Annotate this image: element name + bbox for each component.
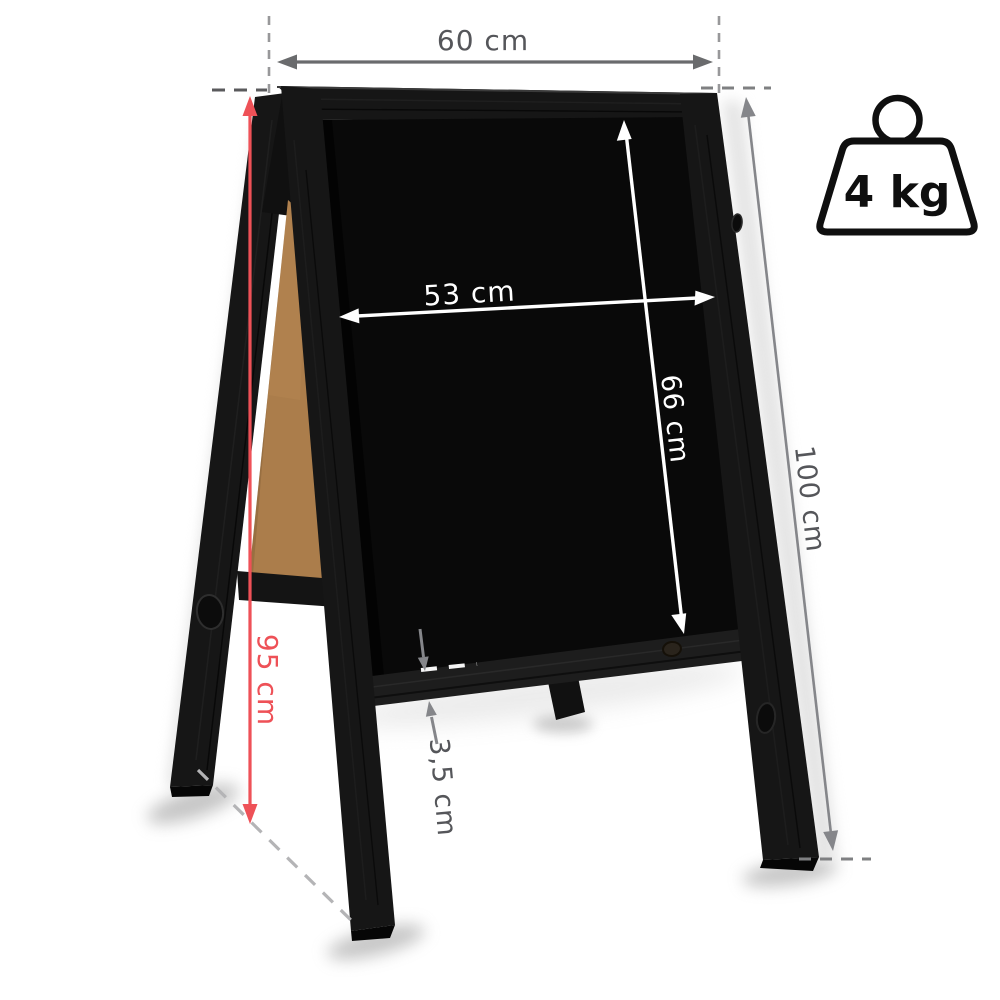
arrowhead-left (277, 55, 297, 70)
top-rail (277, 86, 717, 120)
weight-icon-handle (876, 98, 920, 142)
arrowhead-right (693, 55, 713, 70)
dimension-label-35cm: 3,5 cm (423, 737, 462, 838)
weight-label: 4 kg (844, 167, 951, 218)
diagram-canvas: 60 cm 95 cm 100 cm 53 cm 66 cm 3,5 cm (0, 0, 1000, 1000)
dimension-label-60cm: 60 cm (437, 24, 529, 57)
weight-icon: 4 kg (820, 98, 974, 232)
product-dimension-diagram: 60 cm 95 cm 100 cm 53 cm 66 cm 3,5 cm (0, 0, 1000, 1000)
dimension-label-53cm: 53 cm (423, 274, 517, 312)
guide-floor-diagonal (198, 770, 358, 927)
dimension-label-95cm: 95 cm (251, 634, 284, 726)
arrowhead-down (243, 804, 258, 824)
rear-leg-foot (170, 785, 213, 797)
dimension-outer-width: 60 cm (277, 24, 713, 70)
arrowhead-up (741, 97, 756, 118)
